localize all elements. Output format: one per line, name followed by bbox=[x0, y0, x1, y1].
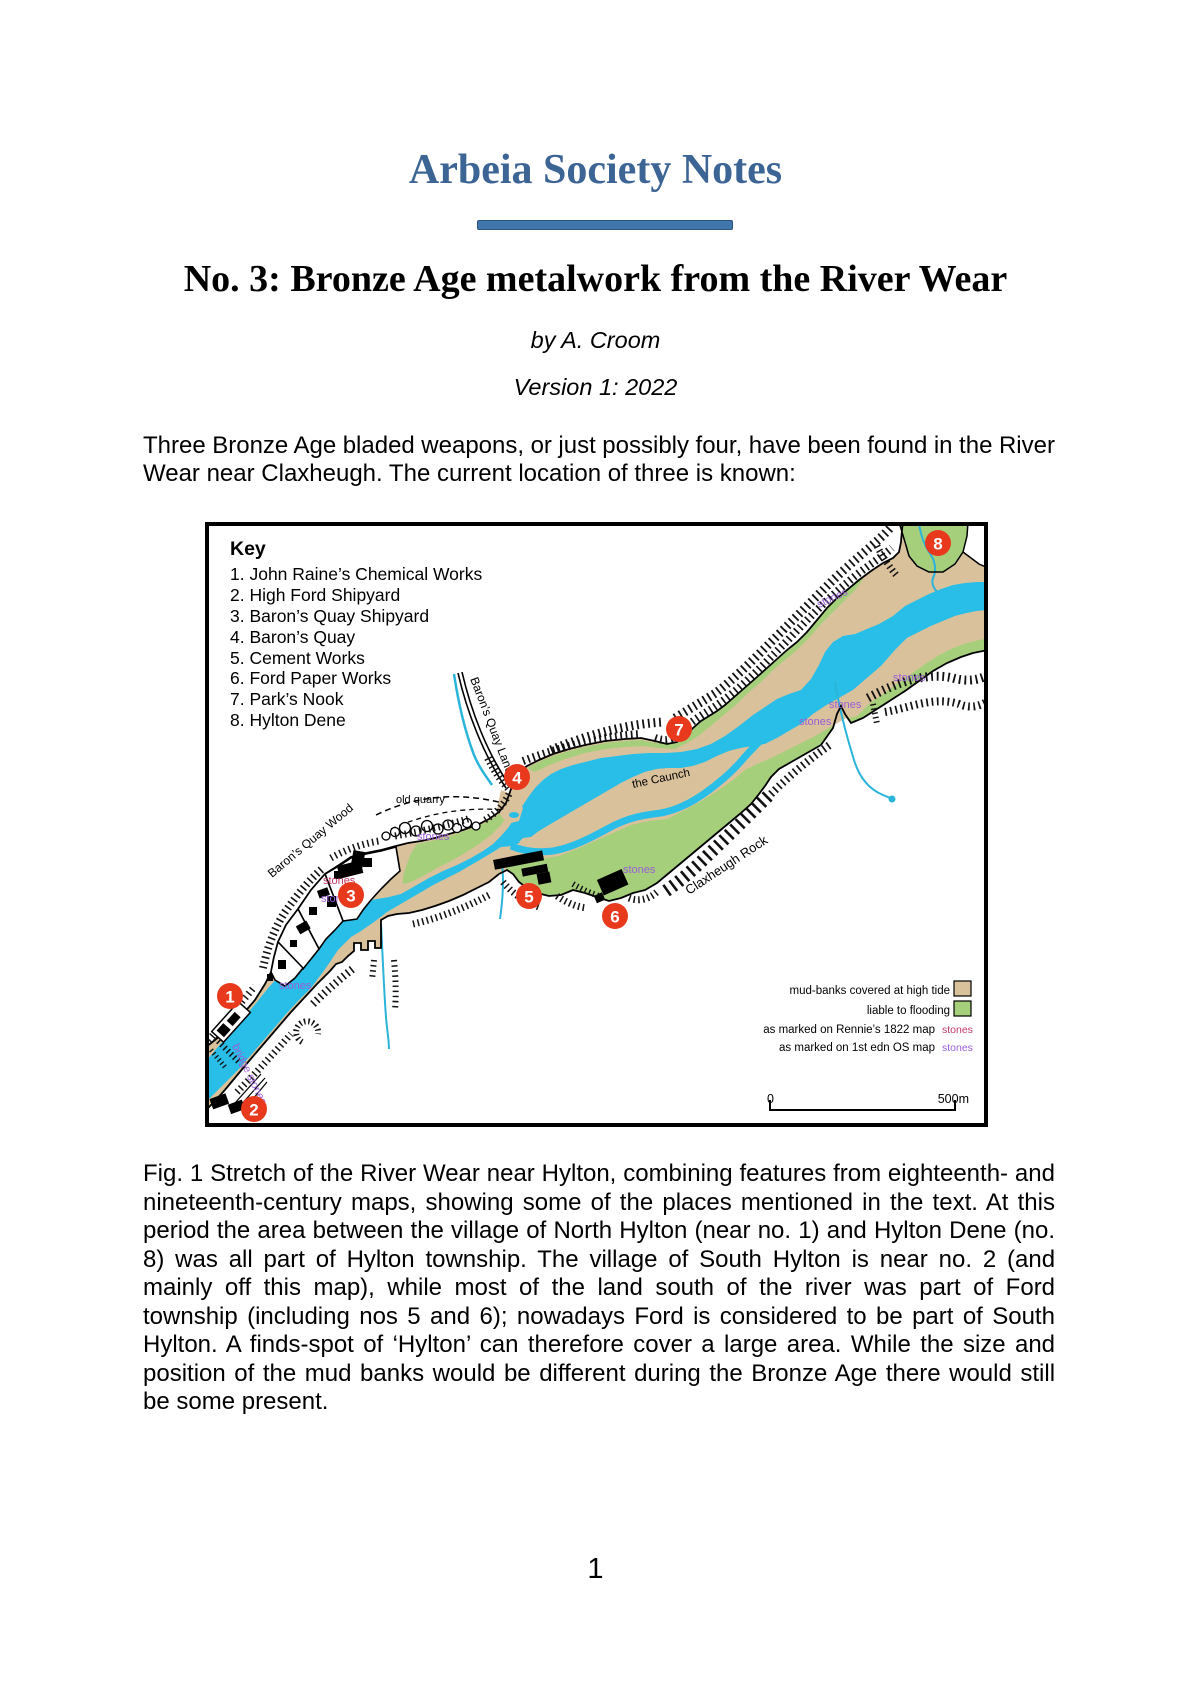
svg-text:1: 1 bbox=[225, 988, 234, 1007]
svg-text:as marked on 1st edn OS map: as marked on 1st edn OS map bbox=[779, 1042, 935, 1054]
svg-text:500m: 500m bbox=[938, 1092, 969, 1106]
svg-text:stones: stones bbox=[942, 1024, 973, 1036]
svg-text:6: 6 bbox=[610, 908, 619, 927]
svg-text:stones: stones bbox=[417, 831, 450, 843]
svg-text:8. Hylton Dene: 8. Hylton Dene bbox=[230, 710, 346, 730]
svg-text:old quarry: old quarry bbox=[396, 794, 445, 806]
svg-text:6. Ford Paper Works: 6. Ford Paper Works bbox=[230, 668, 391, 688]
svg-text:5. Cement Works: 5. Cement Works bbox=[230, 648, 365, 668]
svg-text:4. Baron’s Quay: 4. Baron’s Quay bbox=[230, 627, 355, 647]
svg-text:2: 2 bbox=[249, 1101, 258, 1120]
svg-text:1. John Raine’s Chemical Works: 1. John Raine’s Chemical Works bbox=[230, 564, 482, 584]
svg-text:mud-banks covered at high tide: mud-banks covered at high tide bbox=[790, 985, 950, 997]
svg-text:stones: stones bbox=[623, 864, 656, 876]
svg-text:as marked on Rennie’s 1822 map: as marked on Rennie’s 1822 map bbox=[763, 1024, 935, 1036]
svg-text:7: 7 bbox=[674, 721, 683, 740]
svg-text:stones: stones bbox=[799, 716, 832, 728]
svg-text:5: 5 bbox=[524, 888, 533, 907]
svg-text:7. Park’s Nook: 7. Park’s Nook bbox=[230, 689, 344, 709]
svg-text:Key: Key bbox=[230, 538, 266, 560]
svg-text:liable to flooding: liable to flooding bbox=[867, 1005, 950, 1017]
svg-text:2. High Ford Shipyard: 2. High Ford Shipyard bbox=[230, 585, 400, 605]
svg-text:8: 8 bbox=[933, 535, 942, 554]
svg-text:3: 3 bbox=[346, 887, 355, 906]
svg-text:stones: stones bbox=[893, 672, 926, 684]
svg-text:4: 4 bbox=[512, 769, 522, 788]
svg-text:stones: stones bbox=[829, 699, 862, 711]
svg-text:stones: stones bbox=[942, 1042, 973, 1054]
svg-text:3. Baron’s Quay Shipyard: 3. Baron’s Quay Shipyard bbox=[230, 606, 429, 626]
svg-text:stones: stones bbox=[279, 980, 312, 992]
